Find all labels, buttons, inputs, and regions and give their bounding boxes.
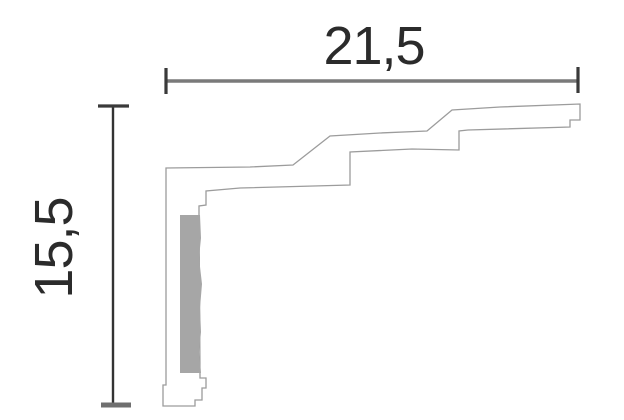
height-dimension-label: 15,5 xyxy=(24,197,84,298)
profile-diagram: 21,5 15,5 xyxy=(0,0,624,420)
width-dimension-label: 21,5 xyxy=(323,16,424,76)
diagram-svg: 21,5 15,5 xyxy=(0,0,624,420)
adhesive-strip xyxy=(180,215,202,373)
profile-outline xyxy=(163,104,580,406)
